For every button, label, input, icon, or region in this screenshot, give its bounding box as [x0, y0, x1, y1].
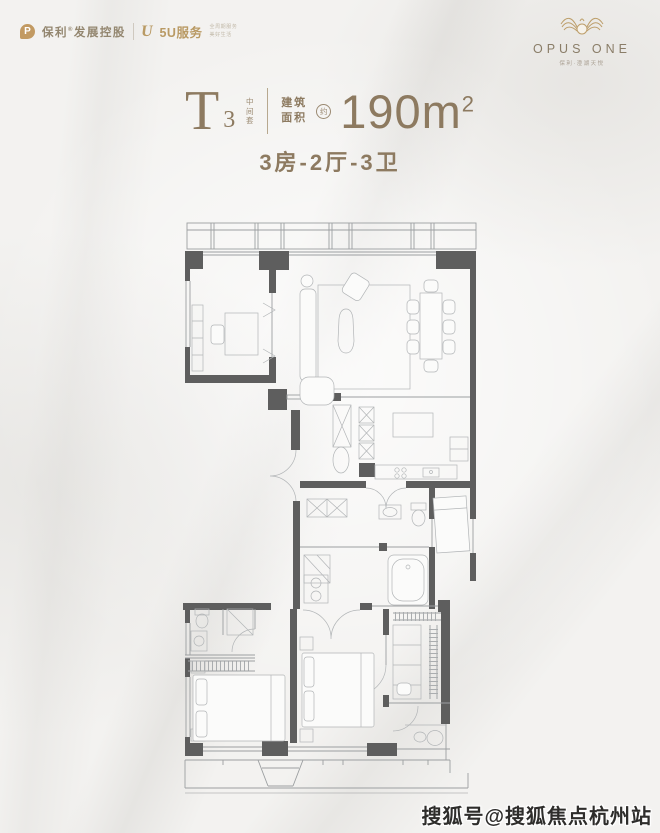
unit-number: 3 [223, 107, 235, 134]
opus-one-subtitle: 保利·澄湖天悦 [524, 59, 640, 67]
floor-plan-svg [183, 217, 478, 802]
bottom-balcony [185, 760, 468, 793]
brand-bar-left: P 保利®发展控股 U 5U服务 全周期服务 美好生活 [20, 22, 237, 41]
kitchen [333, 405, 468, 479]
area-label: 建筑 面积 [281, 96, 307, 126]
brand-bar-right: OPUS ONE 保利·澄湖天悦 [524, 12, 640, 67]
unit-letter: T [185, 86, 219, 136]
area-exponent: 2 [462, 91, 475, 116]
marketing-page: { "header": { "brand_left": { "poly_icon… [0, 0, 660, 833]
sohu-watermark: 搜狐号@搜狐焦点杭州站 [421, 800, 652, 829]
area-label-line1: 建筑 [281, 96, 307, 111]
service-brand-text: 5U服务 [159, 22, 202, 41]
bathroom-left [191, 609, 253, 651]
dining-set [407, 280, 455, 372]
area-number: 190m [340, 85, 462, 138]
bathrooms-middle [304, 499, 428, 605]
area-value: 190m2 [340, 88, 475, 135]
brand-divider [133, 23, 134, 40]
poly-brand-text: 保利®发展控股 [42, 24, 126, 40]
bathroom-master [405, 725, 446, 746]
multi-room [433, 496, 470, 553]
unit-tag: 中间套 [245, 97, 254, 125]
study-furniture [192, 305, 258, 371]
bedroom-left [188, 661, 285, 741]
opus-one-title: OPUS ONE [524, 42, 640, 56]
poly-suffix: 发展控股 [74, 27, 126, 39]
service-tagline-line2: 美好生活 [209, 32, 237, 40]
unit-title-row: T 3 中间套 建筑 面积 约 190m2 [185, 86, 475, 136]
service-tagline-line1: 全周期服务 [209, 24, 237, 32]
service-tagline: 全周期服务 美好生活 [209, 24, 237, 39]
area-label-line2: 面积 [281, 111, 307, 126]
approx-badge: 约 [316, 104, 331, 119]
poly-name: 保利 [42, 27, 68, 39]
living-room-furniture [300, 272, 410, 405]
poly-logo-icon: P [20, 24, 35, 39]
walkin-closet [393, 613, 441, 699]
layout-subtitle: 3房-2厅-3卫 [0, 145, 660, 177]
bedroom-master [300, 637, 374, 742]
top-balcony [187, 223, 476, 249]
wings-emblem-icon [558, 12, 606, 40]
title-block: T 3 中间套 建筑 面积 约 190m2 3房-2厅-3卫 [0, 86, 660, 177]
5u-logo-icon: U [140, 23, 154, 41]
title-divider [267, 88, 268, 134]
